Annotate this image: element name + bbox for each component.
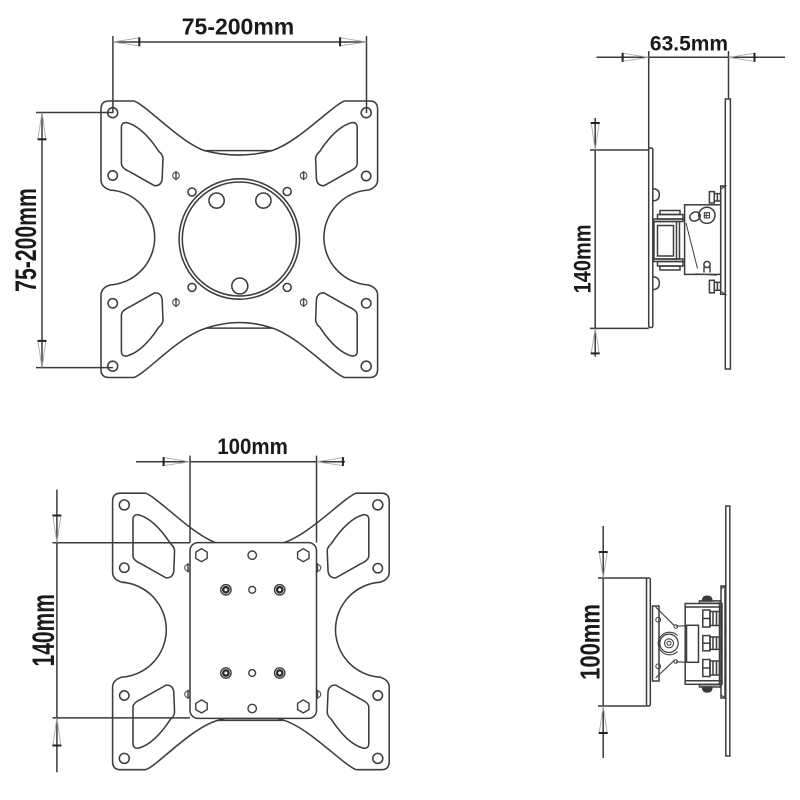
svg-text:100mm: 100mm	[217, 434, 288, 459]
svg-text:140mm: 140mm	[26, 594, 61, 666]
svg-text:75-200mm: 75-200mm	[182, 14, 295, 40]
svg-text:140mm: 140mm	[569, 224, 596, 293]
svg-text:63.5mm: 63.5mm	[650, 33, 728, 56]
svg-text:75-200mm: 75-200mm	[11, 188, 43, 292]
svg-text:100mm: 100mm	[575, 604, 606, 680]
